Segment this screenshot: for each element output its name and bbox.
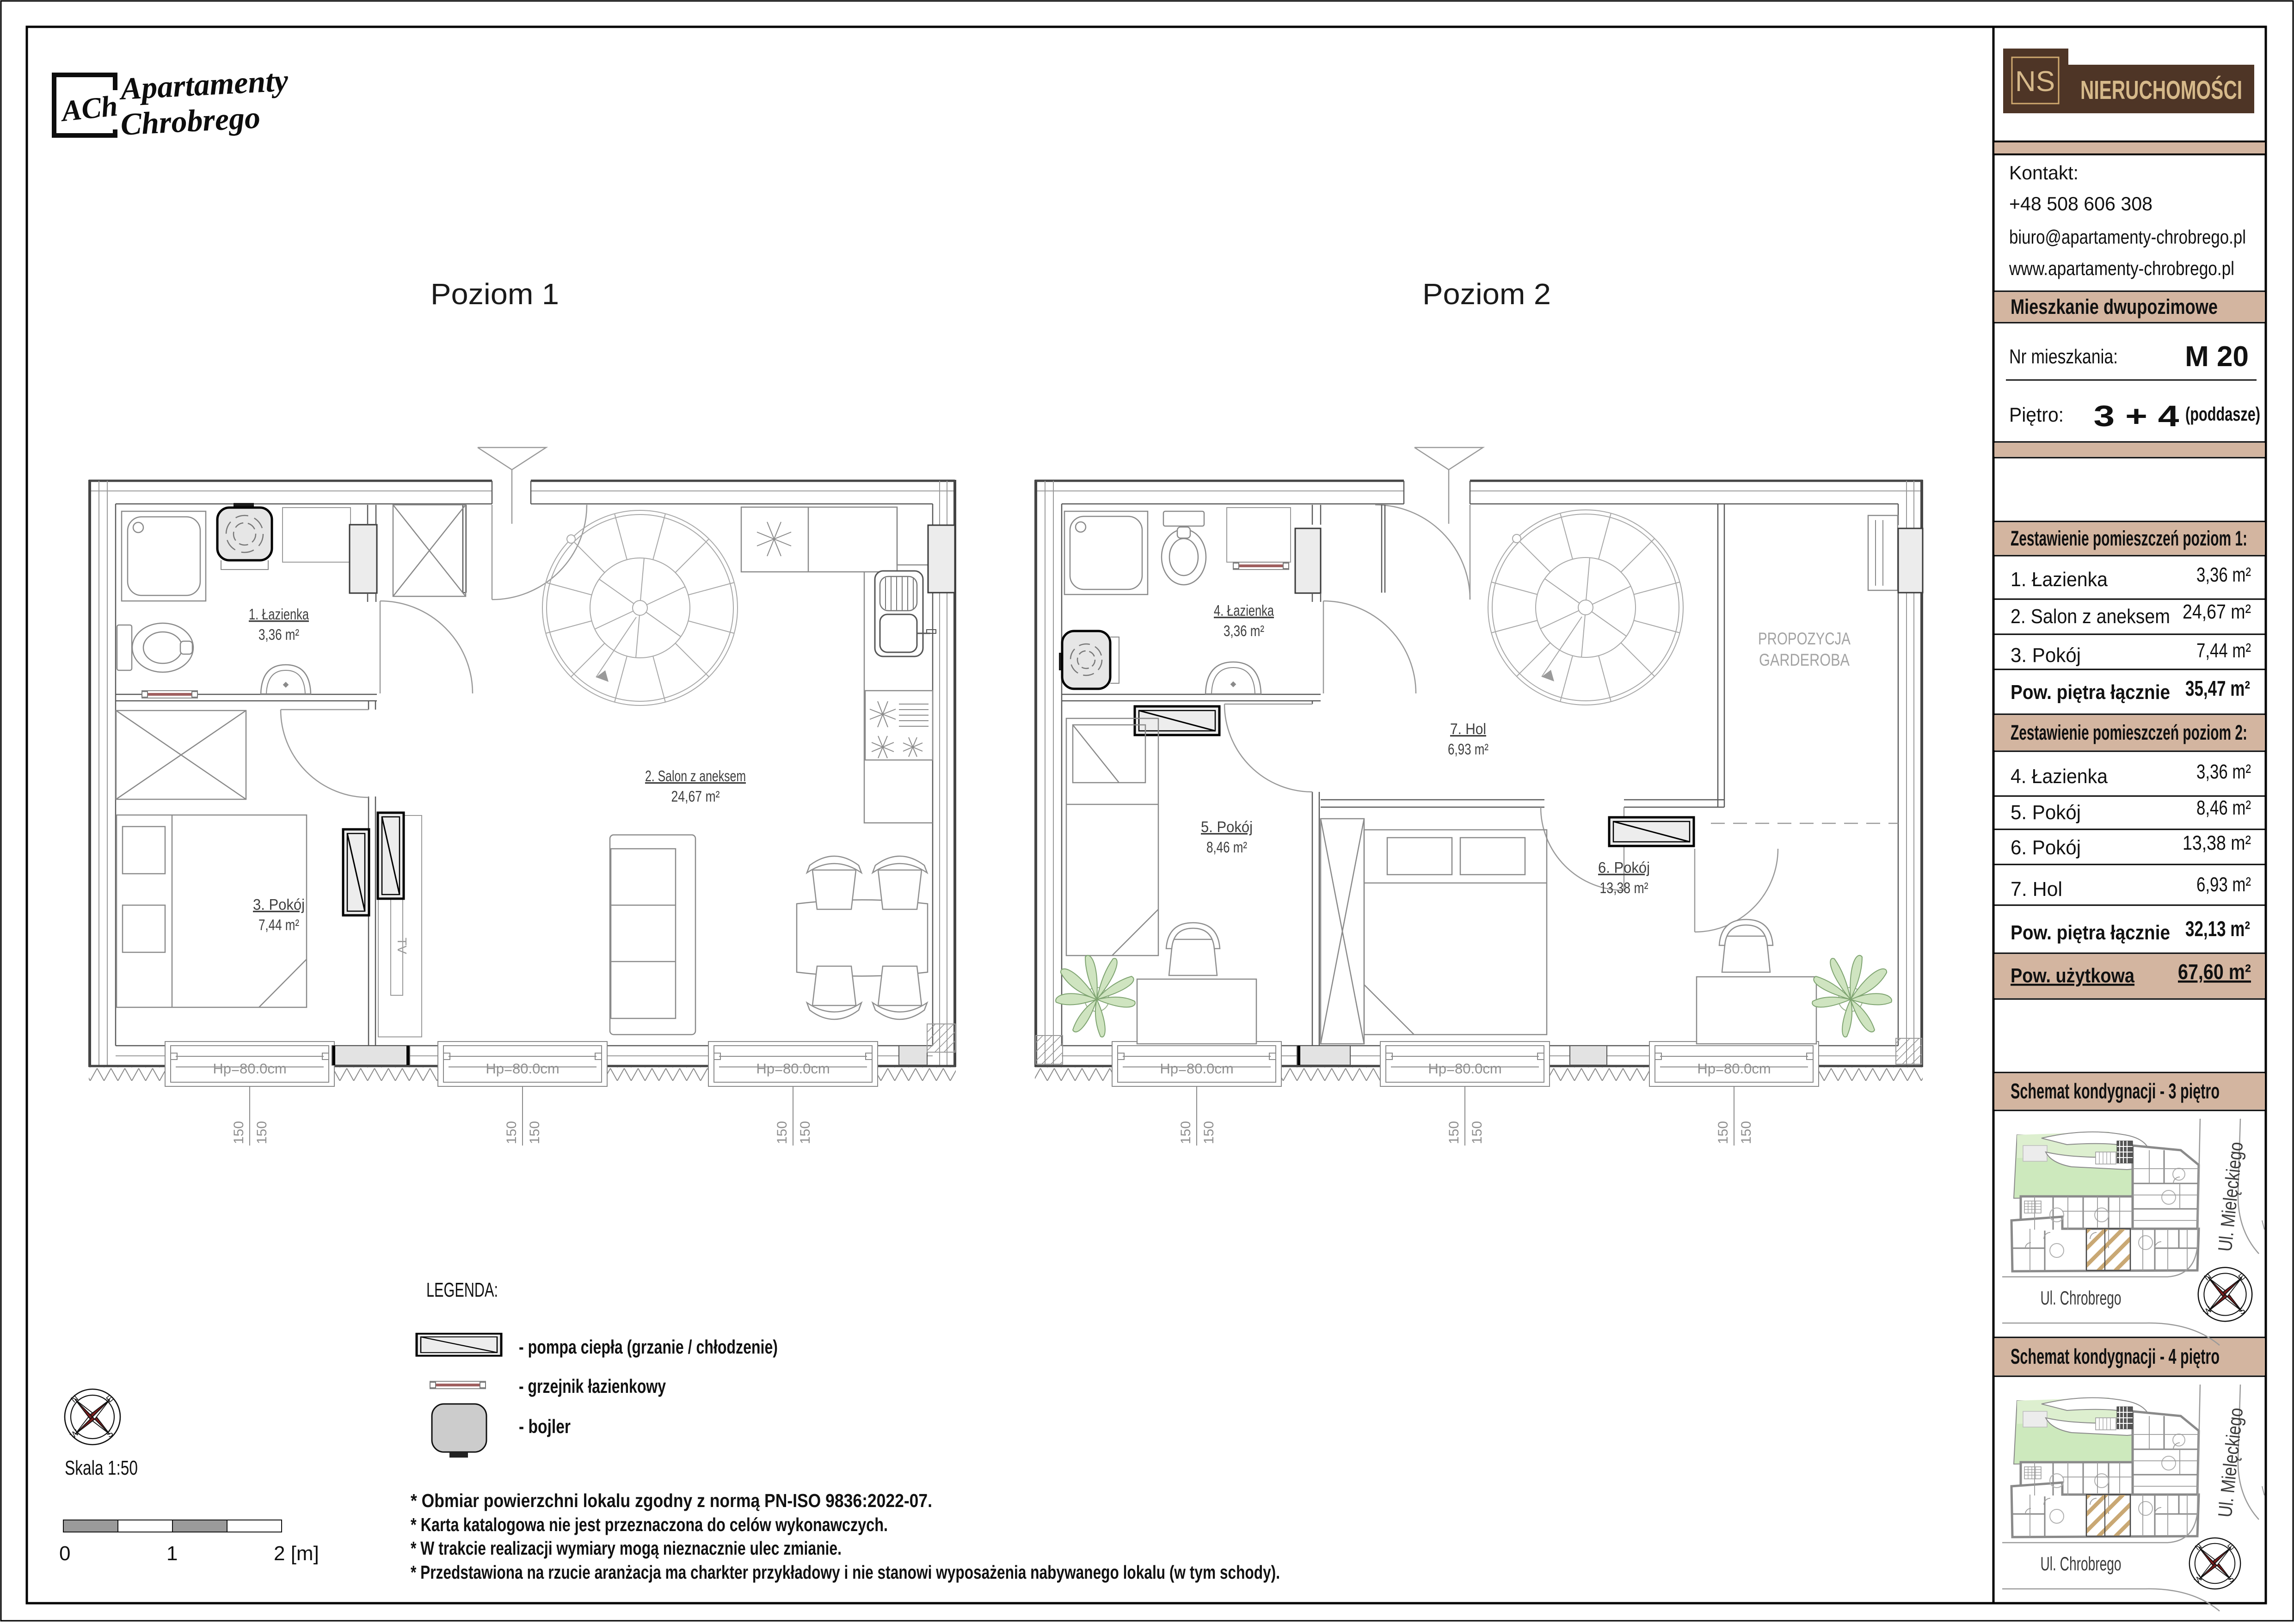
svg-text:6,93 m²: 6,93 m² (1448, 741, 1488, 758)
svg-text:Skala 1:50: Skala 1:50 (65, 1457, 138, 1479)
svg-text:Zestawienie pomieszczeń poziom: Zestawienie pomieszczeń poziom 2: (2011, 721, 2247, 744)
svg-text:Pow. piętra łącznie: Pow. piętra łącznie (2011, 921, 2170, 944)
svg-text:Poziom 2: Poziom 2 (1422, 277, 1551, 311)
svg-text:4. Łazienka: 4. Łazienka (1214, 602, 1274, 619)
svg-text:Chrobrego: Chrobrego (120, 99, 261, 142)
svg-text:4. Łazienka: 4. Łazienka (2011, 765, 2108, 788)
svg-text:67,60 m²: 67,60 m² (2178, 960, 2251, 984)
svg-text:7,44 m²: 7,44 m² (258, 916, 299, 933)
svg-text:- pompa ciepła (grzanie / chło: - pompa ciepła (grzanie / chłodzenie) (519, 1336, 778, 1358)
svg-text:3,36 m²: 3,36 m² (258, 626, 299, 643)
svg-text:ACh: ACh (58, 89, 119, 128)
svg-text:32,13 m²: 32,13 m² (2185, 917, 2250, 941)
svg-text:2. Salon z aneksem: 2. Salon z aneksem (645, 767, 746, 784)
svg-text:6. Pokój: 6. Pokój (2011, 836, 2081, 859)
svg-text:Pow. piętra łącznie: Pow. piętra łącznie (2011, 681, 2170, 704)
svg-text:* Obmiar powierzchni lokalu zg: * Obmiar powierzchni lokalu zgodny z nor… (411, 1490, 932, 1511)
svg-text:1. Łazienka: 1. Łazienka (2011, 568, 2108, 591)
svg-text:Ul. Chrobrego: Ul. Chrobrego (2041, 1287, 2122, 1309)
svg-text:0: 0 (59, 1542, 70, 1565)
svg-text:8,46 m²: 8,46 m² (2196, 797, 2251, 819)
svg-text:biuro@apartamenty-chrobrego.pl: biuro@apartamenty-chrobrego.pl (2009, 226, 2246, 248)
svg-text:5. Pokój: 5. Pokój (1201, 818, 1253, 835)
svg-text:3 + 4: 3 + 4 (2094, 399, 2180, 433)
svg-text:1: 1 (166, 1542, 178, 1565)
svg-text:13,38 m²: 13,38 m² (2183, 832, 2251, 854)
svg-text:3. Pokój: 3. Pokój (2011, 644, 2081, 667)
svg-text:3,36 m²: 3,36 m² (1224, 622, 1264, 639)
svg-text:LEGENDA:: LEGENDA: (426, 1279, 498, 1301)
svg-text:3,36 m²: 3,36 m² (2196, 564, 2251, 586)
svg-text:24,67 m²: 24,67 m² (2183, 601, 2251, 623)
svg-text:(poddasze): (poddasze) (2185, 403, 2260, 425)
svg-text:2. Salon z aneksem: 2. Salon z aneksem (2011, 605, 2170, 628)
svg-text:+48 508 606 308: +48 508 606 308 (2009, 193, 2153, 214)
svg-text:GARDEROBA: GARDEROBA (1759, 650, 1850, 669)
svg-text:Schemat kondygnacji - 3 piętro: Schemat kondygnacji - 3 piętro (2011, 1079, 2220, 1103)
svg-text:* W trakcie realizacji wymiary: * W trakcie realizacji wymiary mogą niez… (411, 1538, 842, 1559)
svg-text:3. Pokój: 3. Pokój (253, 896, 305, 913)
svg-text:Poziom 1: Poziom 1 (431, 277, 559, 311)
svg-text:NIERUCHOMOŚCI: NIERUCHOMOŚCI (2080, 75, 2242, 105)
svg-text:7. Hol: 7. Hol (1450, 720, 1486, 737)
svg-text:6,93 m²: 6,93 m² (2196, 873, 2251, 896)
svg-text:TV: TV (395, 938, 409, 954)
svg-text:- grzejnik łazienkowy: - grzejnik łazienkowy (519, 1375, 666, 1397)
svg-text:13,38 m²: 13,38 m² (1600, 879, 1648, 896)
svg-text:* Karta katalogowa nie jest pr: * Karta katalogowa nie jest przeznaczona… (411, 1514, 888, 1535)
svg-text:Pow. użytkowa: Pow. użytkowa (2011, 964, 2134, 987)
svg-text:Nr mieszkania:: Nr mieszkania: (2009, 345, 2118, 368)
svg-text:3,36 m²: 3,36 m² (2196, 760, 2251, 783)
svg-text:2 [m]: 2 [m] (274, 1542, 319, 1565)
svg-text:7. Hol: 7. Hol (2011, 878, 2062, 901)
svg-text:* Przedstawiona na rzucie aran: * Przedstawiona na rzucie aranżacja ma c… (411, 1562, 1280, 1583)
svg-text:www.apartamenty-chrobrego.pl: www.apartamenty-chrobrego.pl (2009, 257, 2234, 279)
svg-text:M 20: M 20 (2185, 341, 2249, 373)
svg-text:NS: NS (2015, 66, 2055, 98)
svg-text:35,47 m²: 35,47 m² (2185, 676, 2250, 700)
svg-text:8,46 m²: 8,46 m² (1206, 839, 1247, 856)
svg-text:Mieszkanie dwupozimowe: Mieszkanie dwupozimowe (2011, 295, 2218, 319)
svg-text:- bojler: - bojler (519, 1416, 571, 1437)
svg-text:Zestawienie pomieszczeń poziom: Zestawienie pomieszczeń poziom 1: (2011, 527, 2247, 550)
svg-text:24,67 m²: 24,67 m² (671, 788, 720, 805)
svg-text:Kontakt:: Kontakt: (2009, 162, 2079, 184)
svg-text:PROPOZYCJA: PROPOZYCJA (1758, 629, 1851, 648)
svg-text:7,44 m²: 7,44 m² (2196, 639, 2251, 662)
svg-text:Schemat kondygnacji - 4 piętro: Schemat kondygnacji - 4 piętro (2011, 1344, 2220, 1368)
svg-text:5. Pokój: 5. Pokój (2011, 801, 2081, 824)
svg-text:6. Pokój: 6. Pokój (1598, 859, 1650, 876)
svg-text:1. Łazienka: 1. Łazienka (249, 606, 309, 623)
svg-text:Piętro:: Piętro: (2009, 404, 2064, 426)
